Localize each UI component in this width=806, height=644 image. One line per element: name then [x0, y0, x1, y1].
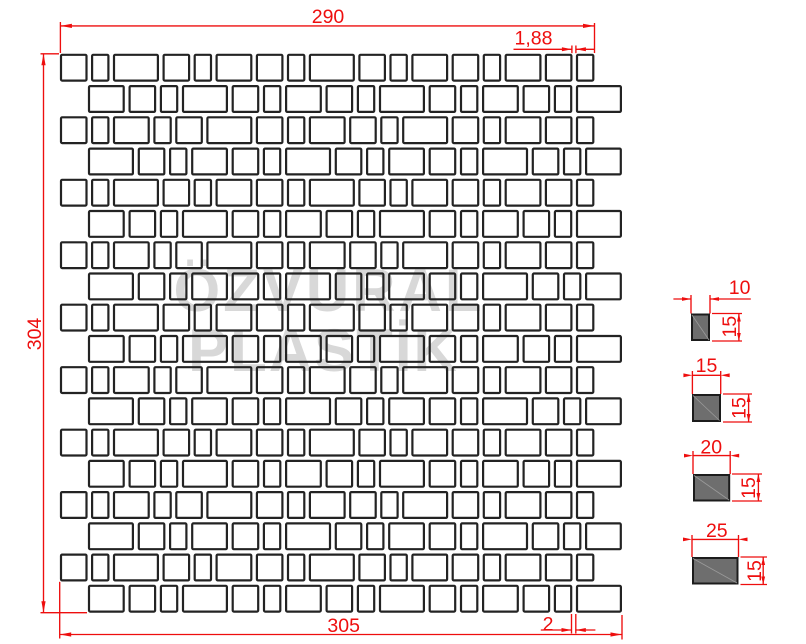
svg-text:290: 290: [312, 6, 345, 28]
svg-text:304: 304: [24, 318, 46, 351]
svg-text:10: 10: [729, 277, 751, 299]
svg-text:15: 15: [738, 477, 760, 499]
svg-text:25: 25: [706, 520, 728, 542]
svg-text:PLASTİK: PLASTİK: [188, 317, 459, 384]
svg-text:15: 15: [696, 355, 718, 377]
svg-text:20: 20: [700, 437, 722, 459]
svg-text:2: 2: [543, 614, 554, 636]
svg-text:15: 15: [719, 316, 741, 338]
svg-text:15: 15: [744, 560, 766, 582]
svg-text:15: 15: [729, 397, 751, 419]
svg-text:1,88: 1,88: [515, 27, 553, 49]
svg-text:305: 305: [327, 615, 360, 637]
